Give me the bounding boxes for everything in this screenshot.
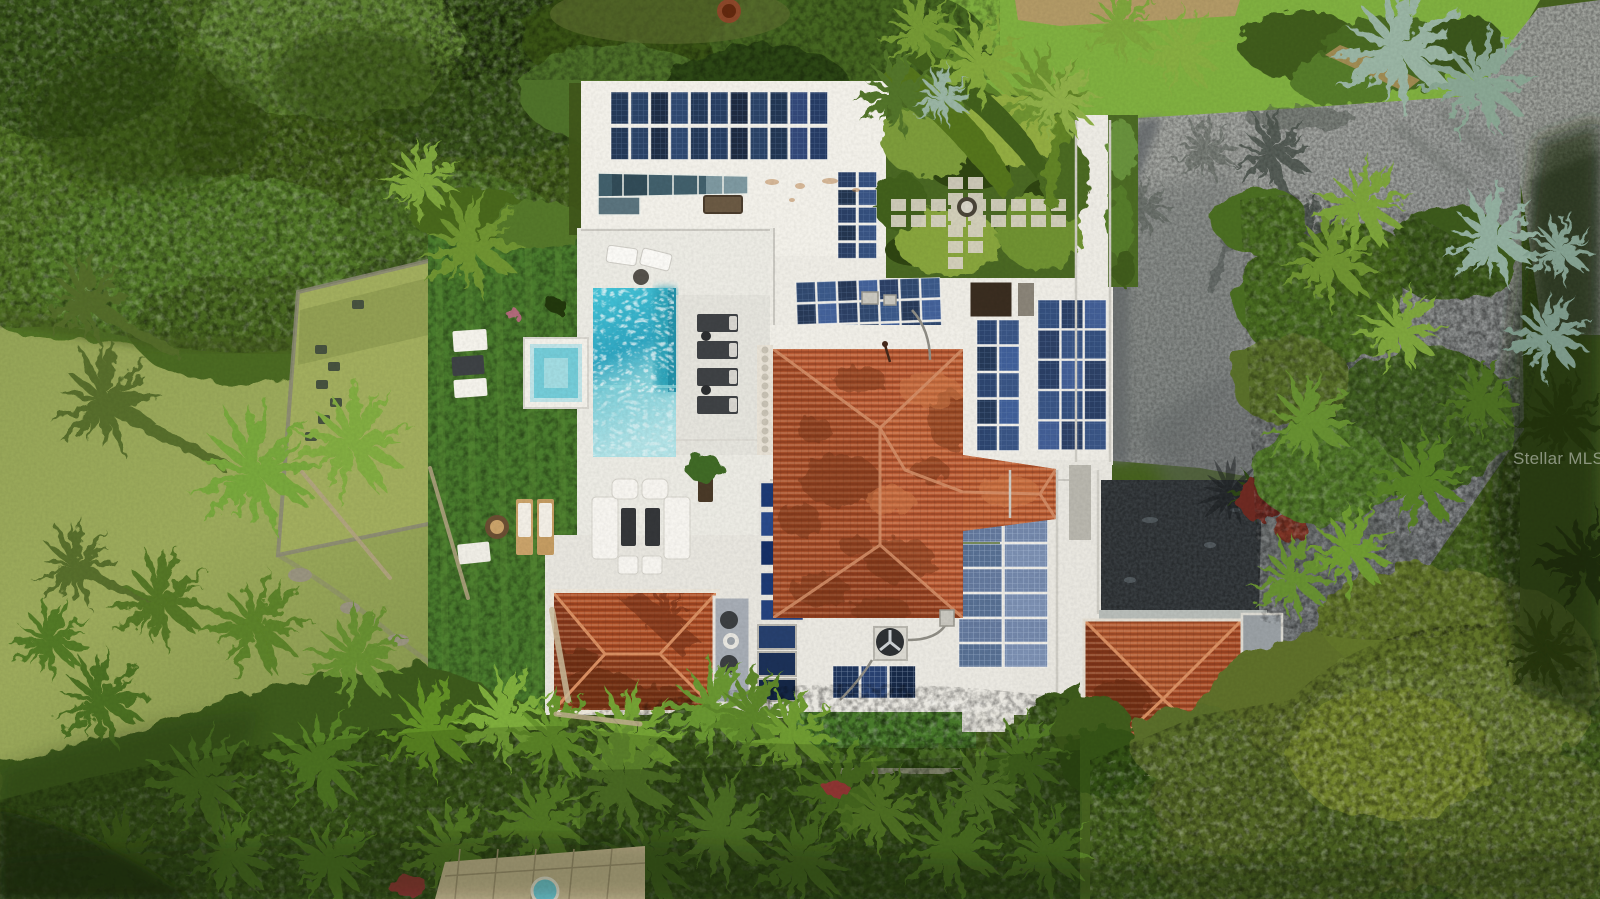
svg-text:Stellar MLS: Stellar MLS (1513, 449, 1600, 468)
